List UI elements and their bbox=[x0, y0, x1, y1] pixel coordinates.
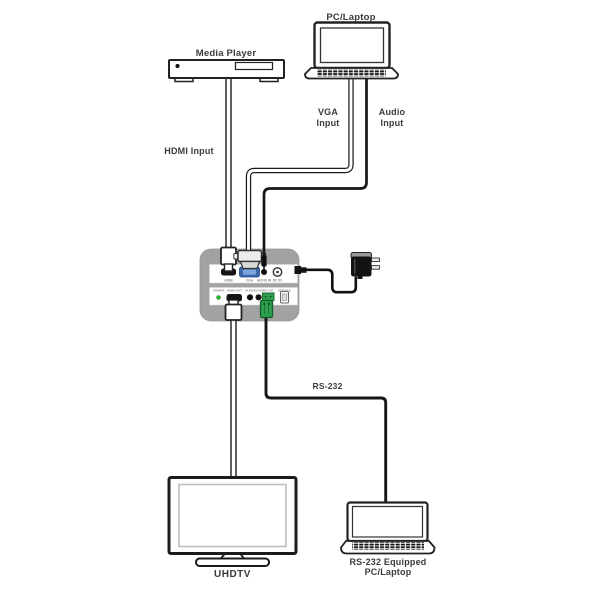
vga-in-port-inner bbox=[243, 270, 256, 275]
hdmi-out-plug bbox=[226, 305, 242, 321]
rear-port-label-rs232: RS-232 bbox=[263, 289, 274, 293]
uhdtv-stand-base bbox=[196, 559, 269, 567]
rs232-cable-label: RS-232 bbox=[302, 381, 353, 391]
media-player-label: Media Player bbox=[170, 48, 282, 59]
dc-barrel-plug-tip bbox=[301, 267, 307, 273]
rs232-laptop-label-line1: RS-232 Equipped bbox=[338, 557, 438, 567]
front-port-label-audio: AUDIO IN bbox=[257, 278, 272, 282]
rs232-phoenix-screw bbox=[268, 303, 270, 305]
front-port-label-hdmi: HDMI bbox=[224, 278, 232, 282]
rear-port-label-coax: COAX bbox=[254, 289, 263, 293]
adapter-prong bbox=[372, 258, 380, 262]
dc-power-jack-pin bbox=[276, 271, 279, 274]
hdmi-out-cable bbox=[226, 300, 242, 479]
rs232-laptop-keyboard bbox=[352, 542, 424, 549]
adapter-body bbox=[351, 257, 372, 277]
rs232-laptop-label-line2: PC/Laptop bbox=[338, 567, 438, 577]
vga-connector-screw bbox=[234, 254, 238, 260]
vga-connector-body bbox=[238, 251, 262, 262]
pc-laptop-label: PC/Laptop bbox=[301, 12, 401, 23]
vga-connector-plug bbox=[241, 262, 260, 269]
diagram-graphics: HDMI VGA AUDIO IN DC 5V POWER HDMI OUT A… bbox=[0, 0, 600, 600]
hdmi-input-label: HDMI Input bbox=[158, 146, 220, 156]
rear-port-label-service: SERVICE bbox=[278, 289, 291, 293]
uhdtv-screen bbox=[179, 485, 286, 547]
rs232-terminal-hole bbox=[270, 296, 272, 298]
audio-out-jack bbox=[247, 294, 253, 300]
adapter-cable-nub bbox=[358, 276, 363, 279]
audio-input-label-line2: Input bbox=[367, 118, 417, 128]
rs232-phoenix-plug bbox=[261, 301, 273, 318]
uhdtv-label: UHDTV bbox=[197, 569, 268, 580]
power-led bbox=[217, 296, 221, 300]
vga-input-label-line1: VGA bbox=[303, 107, 353, 117]
rs232-laptop-screen-inner bbox=[353, 507, 423, 538]
hdmi-in-cable bbox=[221, 79, 236, 271]
rs232-pc-laptop bbox=[341, 503, 435, 554]
media-player-power-dot bbox=[175, 64, 179, 68]
rs232-terminal-block bbox=[263, 293, 275, 301]
coax-out-jack bbox=[256, 294, 262, 300]
rear-port-label-power: POWER bbox=[213, 289, 225, 293]
power-adapter bbox=[351, 253, 380, 280]
rs232-cable bbox=[261, 301, 386, 504]
pc-laptop bbox=[305, 23, 398, 79]
rear-port-label-hdmiout: HDMI OUT bbox=[227, 289, 242, 293]
pc-laptop-screen-inner bbox=[321, 28, 384, 63]
vga-input-label-line2: Input bbox=[303, 118, 353, 128]
connection-diagram: HDMI VGA AUDIO IN DC 5V POWER HDMI OUT A… bbox=[0, 0, 600, 600]
uhdtv bbox=[169, 478, 296, 567]
rs232-phoenix-screw bbox=[263, 303, 265, 305]
front-port-label-dc: DC 5V bbox=[273, 278, 283, 282]
media-player-tray bbox=[236, 63, 273, 70]
rs232-terminal-hole bbox=[265, 296, 267, 298]
service-port-inner bbox=[282, 294, 286, 301]
audio-input-label-line1: Audio bbox=[367, 107, 417, 117]
audio-plug bbox=[261, 256, 266, 267]
hdmi-in-plug-tip bbox=[225, 264, 233, 271]
power-cable bbox=[295, 266, 356, 292]
front-port-label-vga: VGA bbox=[246, 278, 254, 282]
dc-barrel-plug bbox=[295, 266, 302, 274]
pc-laptop-keyboard bbox=[317, 69, 386, 76]
media-player bbox=[169, 60, 284, 82]
adapter-prong bbox=[372, 266, 380, 270]
